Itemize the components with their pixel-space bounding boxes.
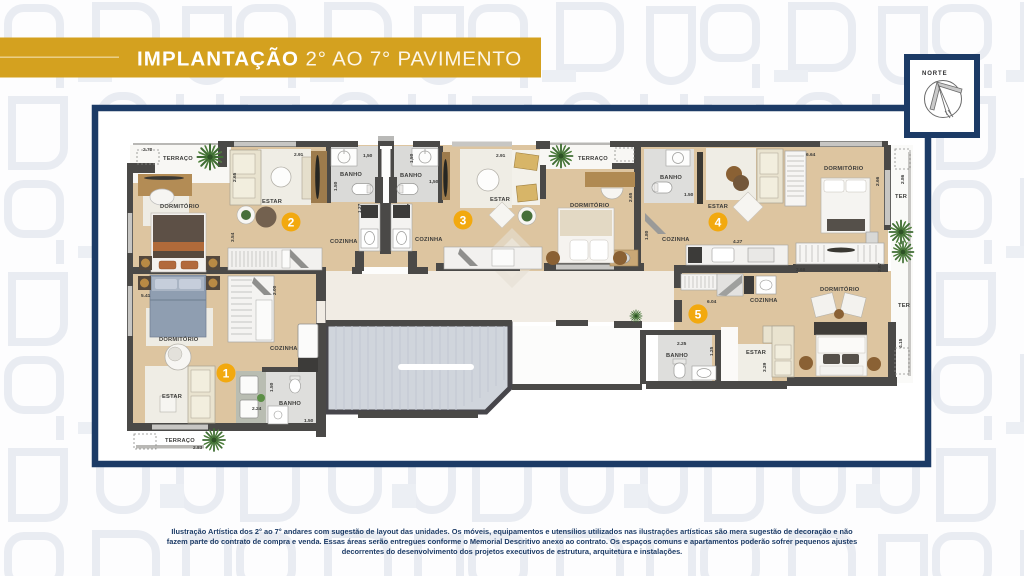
svg-text:1.80: 1.80 bbox=[644, 230, 650, 240]
svg-text:2.83: 2.83 bbox=[193, 445, 203, 451]
svg-text:2.65: 2.65 bbox=[628, 192, 634, 202]
svg-text:2.65: 2.65 bbox=[232, 172, 238, 182]
svg-text:6.64: 6.64 bbox=[806, 152, 816, 158]
svg-text:1.50: 1.50 bbox=[684, 192, 694, 198]
svg-text:ESTAR: ESTAR bbox=[162, 394, 182, 400]
svg-text:IMPLANTAÇÃO 2° AO 7° PAVIMENTO: IMPLANTAÇÃO 2° AO 7° PAVIMENTO bbox=[137, 48, 522, 71]
svg-text:2.66: 2.66 bbox=[875, 176, 881, 186]
svg-text:1.27: 1.27 bbox=[357, 203, 363, 213]
svg-text:COZINHA: COZINHA bbox=[330, 239, 358, 245]
svg-text:2.91: 2.91 bbox=[496, 153, 506, 159]
svg-text:COZINHA: COZINHA bbox=[662, 237, 690, 243]
svg-text:4.15: 4.15 bbox=[898, 338, 904, 348]
svg-text:2.00: 2.00 bbox=[272, 285, 278, 295]
svg-text:1.50: 1.50 bbox=[333, 181, 339, 191]
svg-text:ESTAR: ESTAR bbox=[708, 204, 728, 210]
svg-text:DORMITÓRIO: DORMITÓRIO bbox=[570, 201, 610, 209]
svg-text:COZINHA: COZINHA bbox=[750, 298, 778, 304]
svg-text:1,50: 1,50 bbox=[429, 179, 439, 185]
svg-text:COZINHA: COZINHA bbox=[415, 237, 443, 243]
svg-text:ESTAR: ESTAR bbox=[262, 199, 282, 205]
svg-text:BANHO: BANHO bbox=[660, 175, 682, 181]
svg-text:TERRAÇO: TERRAÇO bbox=[163, 156, 193, 162]
svg-text:2.86: 2.86 bbox=[900, 174, 906, 184]
svg-text:DORMITÓRIO: DORMITÓRIO bbox=[820, 285, 860, 293]
svg-text:Ilustração Artística dos 2° ao: Ilustração Artística dos 2° ao 7° andare… bbox=[171, 527, 853, 536]
svg-text:BANHO: BANHO bbox=[340, 172, 362, 178]
svg-text:2.25: 2.25 bbox=[677, 341, 687, 347]
svg-text:3: 3 bbox=[460, 214, 467, 228]
svg-text:2: 2 bbox=[288, 216, 295, 230]
svg-text:NORTE: NORTE bbox=[922, 71, 948, 77]
svg-text:TERRAÇO: TERRAÇO bbox=[165, 438, 195, 444]
svg-text:ESTAR: ESTAR bbox=[746, 350, 766, 356]
svg-text:BANHO: BANHO bbox=[279, 401, 301, 407]
svg-text:4: 4 bbox=[715, 216, 722, 230]
svg-text:5.41: 5.41 bbox=[141, 293, 151, 299]
svg-text:1.50: 1.50 bbox=[269, 382, 275, 392]
svg-text:2.91: 2.91 bbox=[294, 152, 304, 158]
svg-text:TERRAÇO: TERRAÇO bbox=[578, 156, 608, 162]
svg-text:DORMITÓRIO: DORMITÓRIO bbox=[160, 202, 200, 210]
svg-text:fazem parte do contrato de com: fazem parte do contrato de compra e vend… bbox=[167, 537, 857, 546]
svg-text:3.67: 3.67 bbox=[877, 262, 883, 272]
svg-text:2.70: 2.70 bbox=[143, 147, 153, 153]
svg-text:3.54: 3.54 bbox=[230, 232, 236, 242]
svg-text:2.68: 2.68 bbox=[796, 267, 806, 273]
svg-text:5: 5 bbox=[695, 308, 702, 322]
svg-text:1.25: 1.25 bbox=[709, 346, 715, 356]
svg-text:TER: TER bbox=[898, 303, 910, 309]
svg-text:decorrentes do desenvolvimento: decorrentes do desenvolvimento dos proje… bbox=[342, 547, 682, 556]
svg-text:DORMITÓRIO: DORMITÓRIO bbox=[824, 164, 864, 172]
svg-text:DORMITÓRIO: DORMITÓRIO bbox=[159, 335, 199, 343]
svg-text:6.04: 6.04 bbox=[707, 299, 717, 305]
svg-text:COZINHA: COZINHA bbox=[270, 346, 298, 352]
svg-text:4.27: 4.27 bbox=[733, 239, 743, 245]
svg-text:1,50: 1,50 bbox=[363, 153, 373, 159]
svg-text:3.29: 3.29 bbox=[762, 362, 768, 372]
svg-text:2.24: 2.24 bbox=[252, 406, 262, 412]
svg-text:BANHO: BANHO bbox=[666, 353, 688, 359]
svg-text:ESTAR: ESTAR bbox=[490, 197, 510, 203]
svg-text:1,50: 1,50 bbox=[409, 153, 415, 163]
svg-text:1: 1 bbox=[223, 367, 230, 381]
svg-text:1.50: 1.50 bbox=[304, 418, 314, 424]
svg-text:1.27: 1.27 bbox=[406, 203, 412, 213]
svg-text:TER: TER bbox=[895, 194, 907, 200]
svg-text:BANHO: BANHO bbox=[400, 173, 422, 179]
